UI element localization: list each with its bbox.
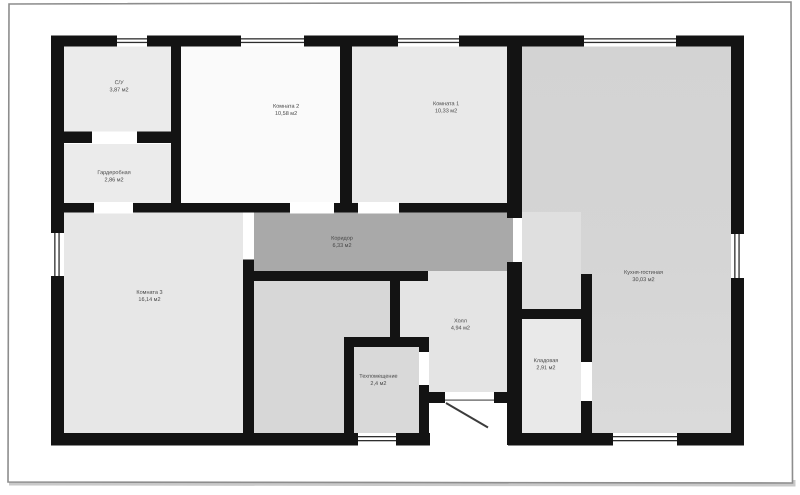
svg-text:Кладовая2,91 м2: Кладовая2,91 м2 [534, 358, 559, 371]
svg-text:Комната 110,33 м2: Комната 110,33 м2 [433, 101, 459, 114]
svg-text:Коридор6,33 м2: Коридор6,33 м2 [331, 236, 353, 249]
svg-text:Комната 210,58 м2: Комната 210,58 м2 [273, 104, 299, 117]
svg-text:Комната 316,14 м2: Комната 316,14 м2 [136, 290, 162, 303]
